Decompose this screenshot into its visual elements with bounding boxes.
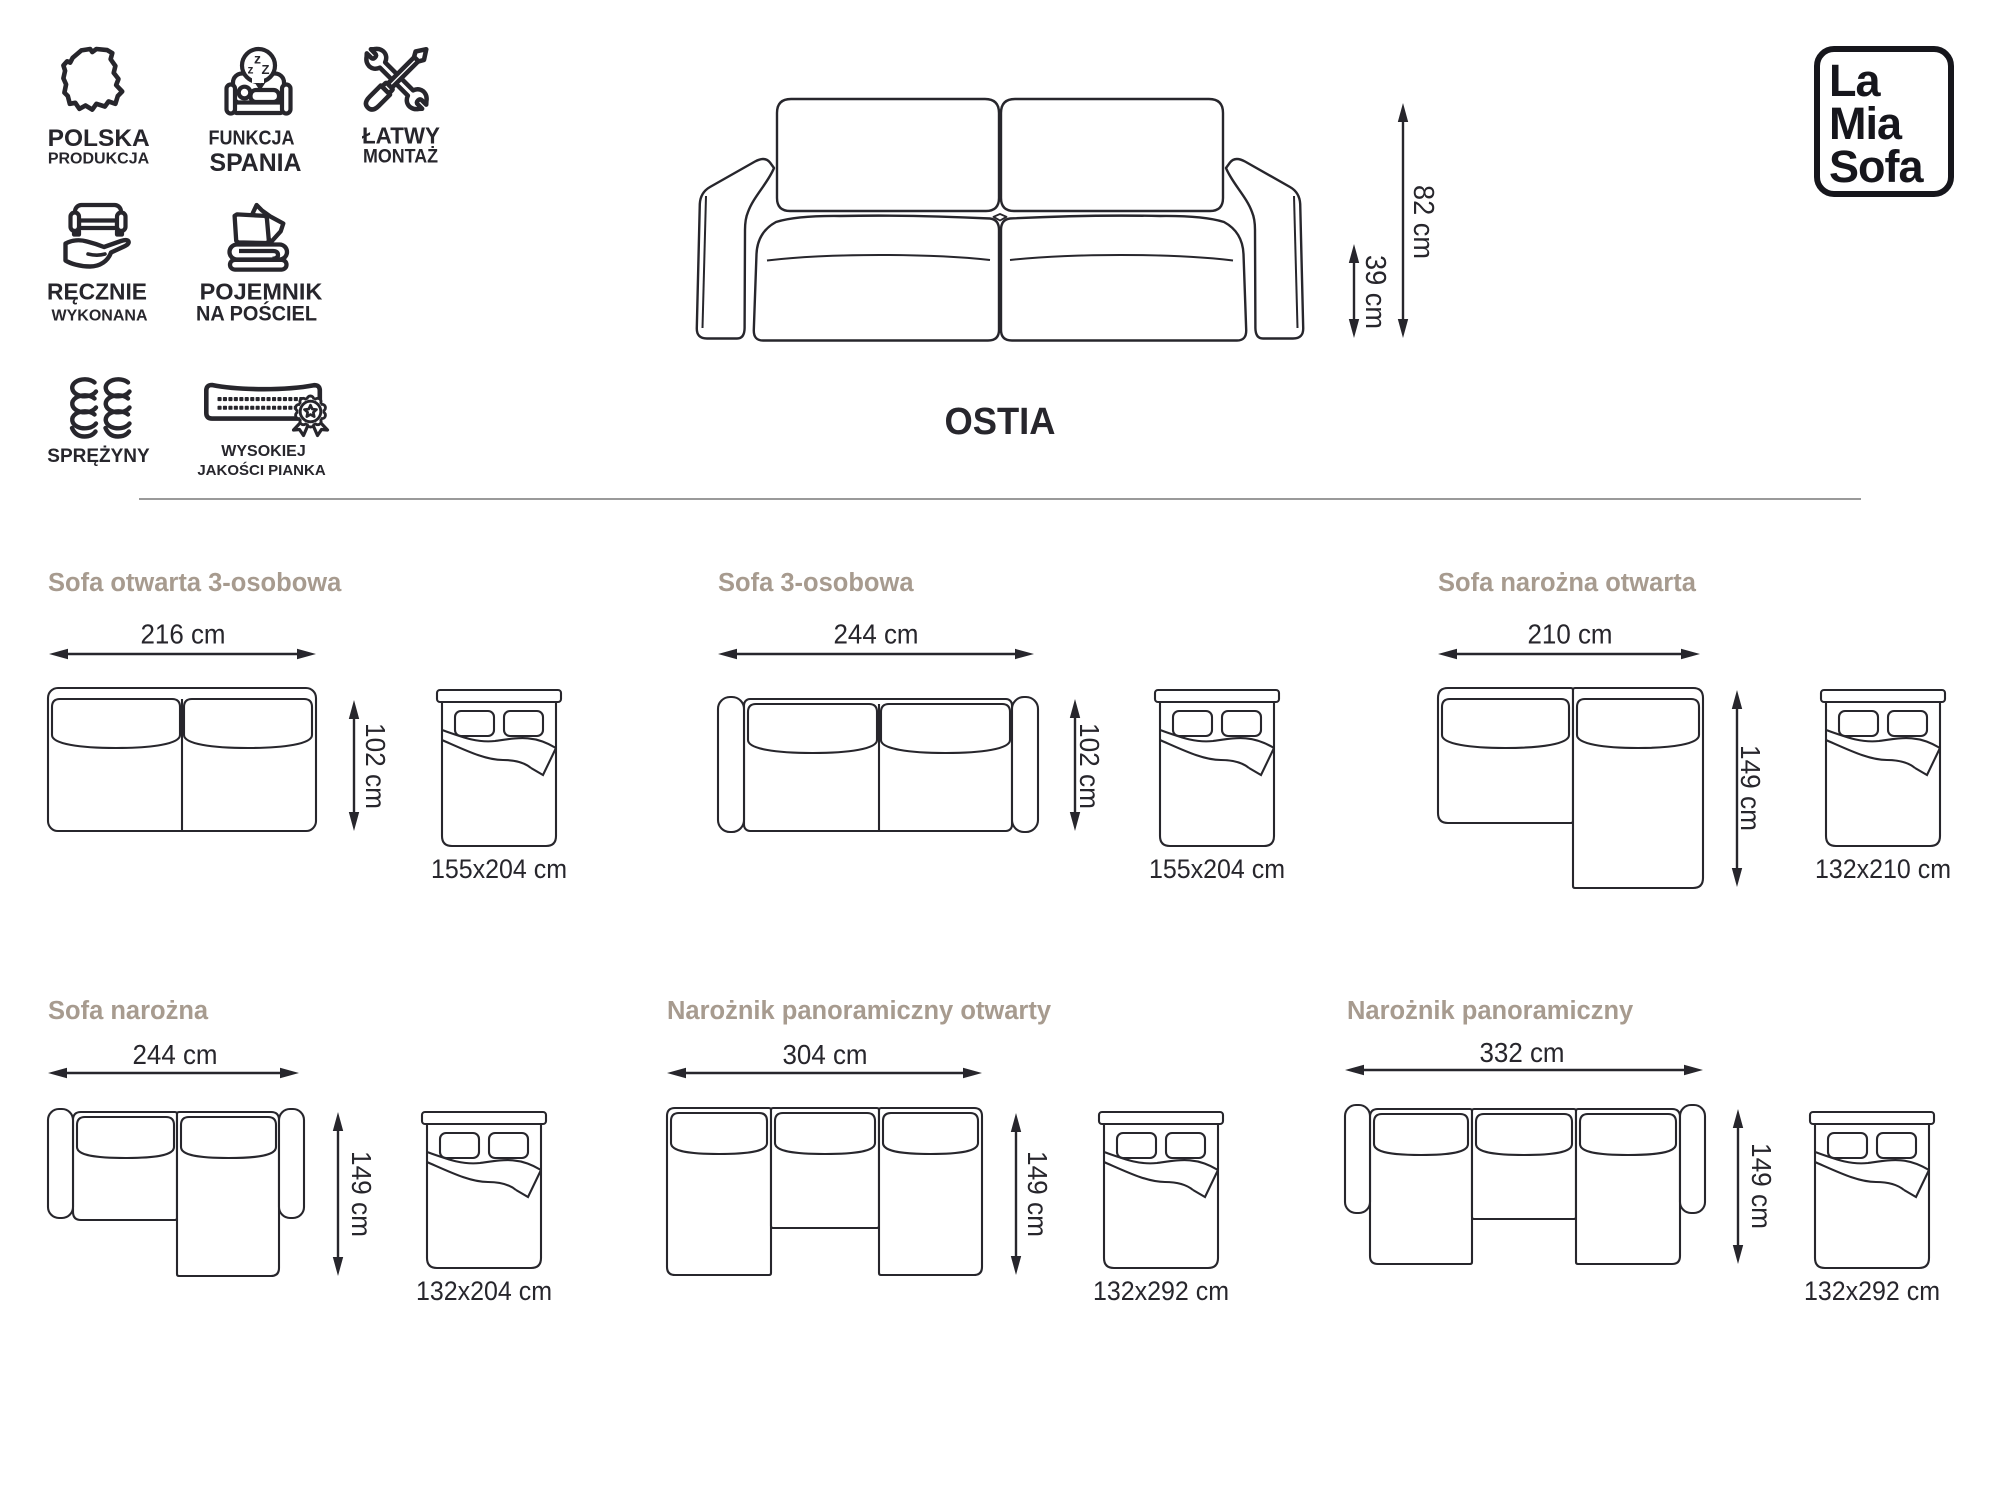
svg-text:132x292 cm: 132x292 cm: [1093, 1276, 1229, 1306]
svg-text:Sofa 3-osobowa: Sofa 3-osobowa: [718, 569, 914, 597]
svg-text:Narożnik panoramiczny: Narożnik panoramiczny: [1347, 997, 1634, 1025]
svg-text:155x204 cm: 155x204 cm: [431, 854, 567, 884]
svg-text:MONTAŻ: MONTAŻ: [363, 145, 438, 168]
svg-text:149 cm: 149 cm: [1022, 1151, 1053, 1237]
svg-text:NA POŚCIEL: NA POŚCIEL: [196, 301, 317, 326]
svg-text:102 cm: 102 cm: [360, 723, 391, 809]
svg-text:Sofa otwarta 3-osobowa: Sofa otwarta 3-osobowa: [48, 569, 342, 597]
svg-text:244 cm: 244 cm: [133, 1039, 218, 1070]
svg-text:149 cm: 149 cm: [1746, 1143, 1777, 1229]
svg-text:39 cm: 39 cm: [1359, 255, 1391, 329]
svg-text:155x204 cm: 155x204 cm: [1149, 854, 1285, 884]
svg-text:304 cm: 304 cm: [783, 1039, 868, 1070]
svg-text:RĘCZNIE: RĘCZNIE: [47, 279, 147, 305]
svg-text:Sofa: Sofa: [1829, 141, 1924, 192]
svg-text:Sofa narożna: Sofa narożna: [48, 997, 209, 1025]
svg-text:149 cm: 149 cm: [346, 1151, 377, 1237]
svg-text:Z: Z: [262, 62, 270, 77]
svg-text:WYSOKIEJ: WYSOKIEJ: [221, 443, 305, 460]
svg-text:149 cm: 149 cm: [1735, 745, 1766, 831]
svg-text:102 cm: 102 cm: [1074, 723, 1105, 809]
svg-text:244 cm: 244 cm: [834, 619, 919, 650]
svg-text:210 cm: 210 cm: [1528, 619, 1613, 650]
svg-text:WYKONANA: WYKONANA: [52, 308, 148, 325]
svg-text:JAKOŚCI PIANKA: JAKOŚCI PIANKA: [197, 461, 326, 479]
svg-text:332 cm: 332 cm: [1480, 1037, 1565, 1068]
svg-text:SPANIA: SPANIA: [210, 149, 302, 177]
svg-text:z: z: [254, 51, 261, 67]
svg-text:OSTIA: OSTIA: [945, 401, 1056, 443]
svg-text:FUNKCJA: FUNKCJA: [209, 128, 295, 150]
svg-text:216 cm: 216 cm: [141, 619, 226, 650]
svg-text:Narożnik panoramiczny otwarty: Narożnik panoramiczny otwarty: [667, 997, 1052, 1025]
svg-text:SPRĘŻYNY: SPRĘŻYNY: [47, 446, 150, 467]
svg-text:82 cm: 82 cm: [1407, 185, 1439, 259]
svg-text:Sofa narożna otwarta: Sofa narożna otwarta: [1438, 569, 1697, 597]
svg-text:POLSKA: POLSKA: [48, 125, 150, 152]
svg-text:132x204 cm: 132x204 cm: [416, 1276, 552, 1306]
svg-text:132x210 cm: 132x210 cm: [1815, 854, 1951, 884]
svg-text:132x292 cm: 132x292 cm: [1804, 1276, 1940, 1306]
svg-text:PRODUKCJA: PRODUKCJA: [48, 151, 150, 168]
svg-text:z: z: [248, 63, 254, 77]
